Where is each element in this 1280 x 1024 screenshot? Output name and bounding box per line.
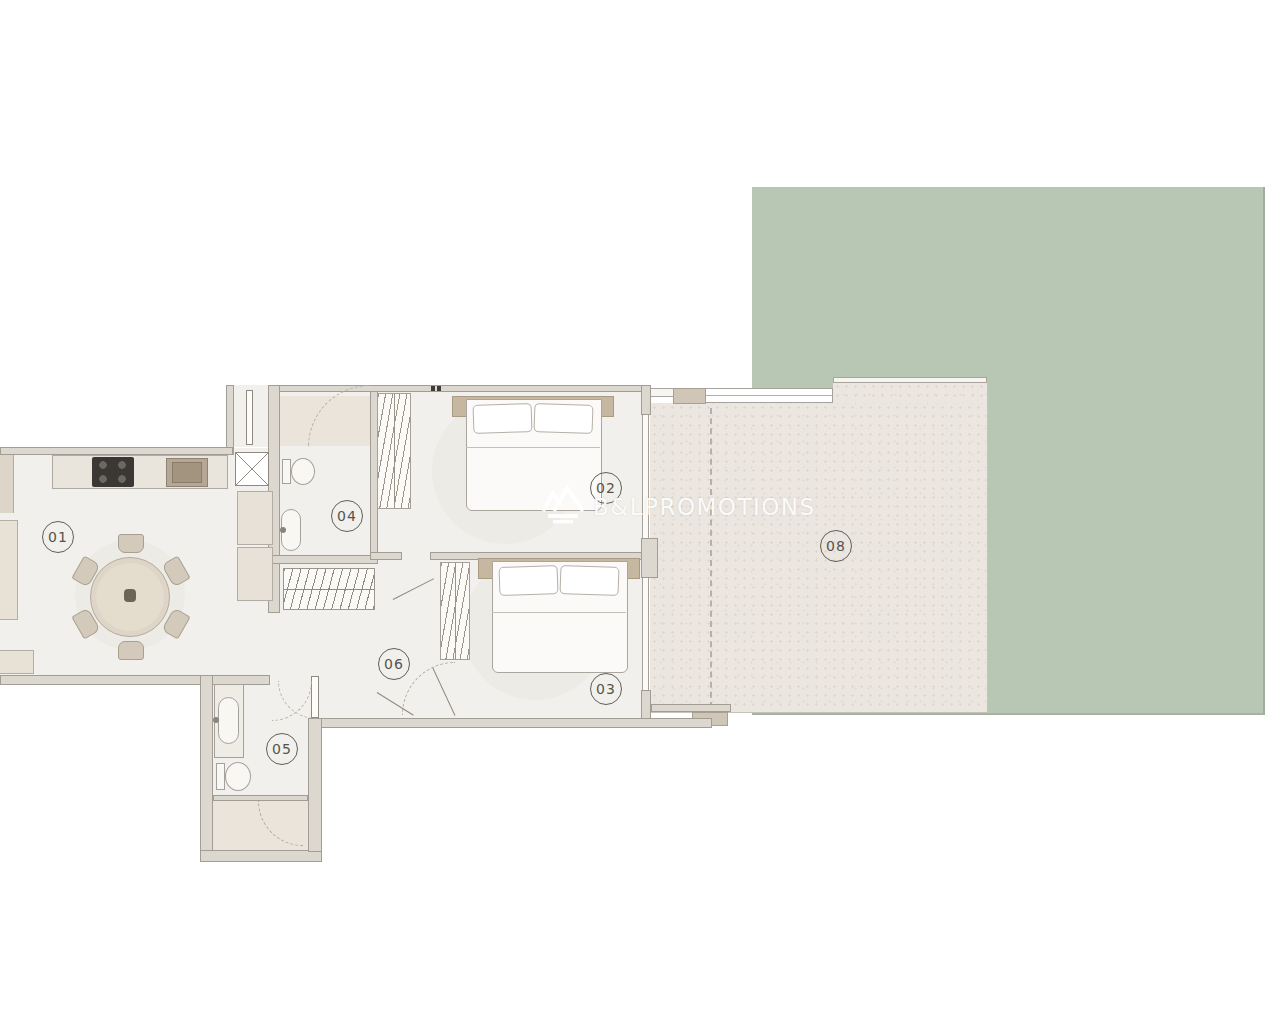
toilet-tank	[282, 459, 291, 484]
table-centerpiece	[124, 589, 136, 602]
duvet-fold	[466, 447, 600, 448]
toilet-bowl	[291, 458, 315, 485]
wall-tick	[437, 386, 441, 391]
sideboard	[0, 650, 34, 674]
toilet-bowl	[225, 762, 251, 791]
wall-bathroom-main-bottom	[268, 555, 378, 564]
room-label-text: 02	[596, 480, 616, 496]
kitchen-tall-cabinet-1	[237, 491, 273, 545]
room-label-bedroom-second: 03	[590, 673, 622, 705]
wall-right-pier	[641, 538, 658, 578]
wardrobe-bedroom-second	[440, 562, 470, 660]
stairs	[283, 568, 375, 610]
wall-tick	[431, 386, 435, 391]
entrance-door-leaf	[246, 390, 253, 445]
terrace-top-wall	[833, 377, 987, 383]
terrace-wall-stub	[648, 388, 676, 397]
terrace-dashed-divider	[710, 408, 712, 708]
cooktop	[92, 457, 134, 487]
dining-chair	[118, 641, 144, 660]
toilet-tank	[216, 763, 225, 790]
room-label-bedroom-main: 02	[590, 472, 622, 504]
sofa-cutoff	[0, 520, 18, 620]
dining-table	[90, 557, 170, 637]
room-label-hallway: 06	[378, 648, 410, 680]
wall-right-top	[641, 385, 651, 415]
sink-basin	[172, 462, 202, 483]
wall-entrance-left	[226, 385, 234, 455]
wall-wing-left	[200, 675, 213, 862]
wardrobe-rail	[394, 394, 395, 508]
room-label-text: 06	[384, 656, 404, 672]
room-label-bathroom-main: 04	[331, 500, 363, 532]
window-bedroom-second	[642, 578, 649, 690]
counter-cutoff	[0, 455, 14, 513]
wall-top-living	[0, 447, 233, 455]
bed-pillow	[534, 403, 594, 434]
wall-top-bedrooms	[270, 385, 650, 392]
room-label-living: 01	[42, 521, 74, 553]
room-label-terrace: 08	[820, 530, 852, 562]
duvet-fold	[492, 612, 626, 613]
room-label-text: 05	[272, 741, 292, 757]
terrace-bottom-wall	[651, 704, 731, 712]
wardrobe-rail	[455, 563, 456, 659]
wall-wing-right	[308, 718, 322, 852]
wardrobe-bedroom-main	[377, 393, 411, 509]
window-bedroom-main	[642, 415, 649, 538]
terrace-floor-upper	[833, 382, 988, 404]
terrace-sliding-window	[705, 388, 833, 403]
kitchen-sink	[166, 458, 208, 487]
washbasin	[218, 697, 239, 744]
stairs-mid-line	[284, 589, 374, 590]
faucet	[213, 717, 219, 723]
room-label-text: 01	[48, 529, 68, 545]
bed-pillow	[499, 565, 559, 596]
dining-chair	[118, 534, 144, 553]
room-label-text: 04	[337, 508, 357, 524]
room-label-text: 08	[826, 538, 846, 554]
kitchen-tall-cabinet-2	[237, 547, 273, 601]
room-label-bathroom-second: 05	[266, 733, 298, 765]
room-label-text: 03	[596, 681, 616, 697]
bed-pillow	[560, 565, 620, 596]
wall-bottom-bedrooms	[310, 718, 712, 728]
terrace-floor	[650, 403, 988, 713]
wall-between-bedrooms-stub	[370, 552, 402, 560]
installation-shaft	[235, 452, 269, 486]
floorplan-image: 01 02 03 04 05 06 08 B&LPROMOTIONS	[0, 0, 1280, 1024]
terrace-door-panel	[673, 388, 706, 404]
faucet	[280, 527, 286, 533]
wall-wing-bottom	[200, 850, 322, 862]
bed-pillow	[473, 403, 533, 434]
